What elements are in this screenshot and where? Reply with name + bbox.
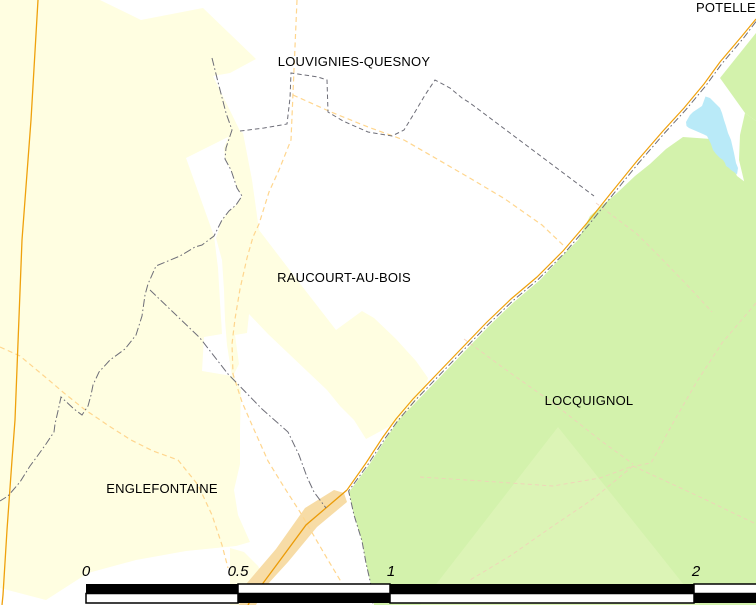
svg-text:1: 1 (387, 563, 395, 580)
svg-text:ENGLEFONTAINE: ENGLEFONTAINE (106, 481, 218, 496)
svg-text:LOUVIGNIES-QUESNOY: LOUVIGNIES-QUESNOY (278, 54, 431, 69)
svg-text:POTELLE: POTELLE (696, 0, 756, 15)
svg-text:0.5: 0.5 (228, 563, 250, 580)
svg-text:LOCQUIGNOL: LOCQUIGNOL (545, 393, 634, 408)
svg-text:2: 2 (691, 563, 701, 580)
svg-text:RAUCOURT-AU-BOIS: RAUCOURT-AU-BOIS (277, 270, 411, 285)
svg-text:0: 0 (82, 563, 91, 580)
